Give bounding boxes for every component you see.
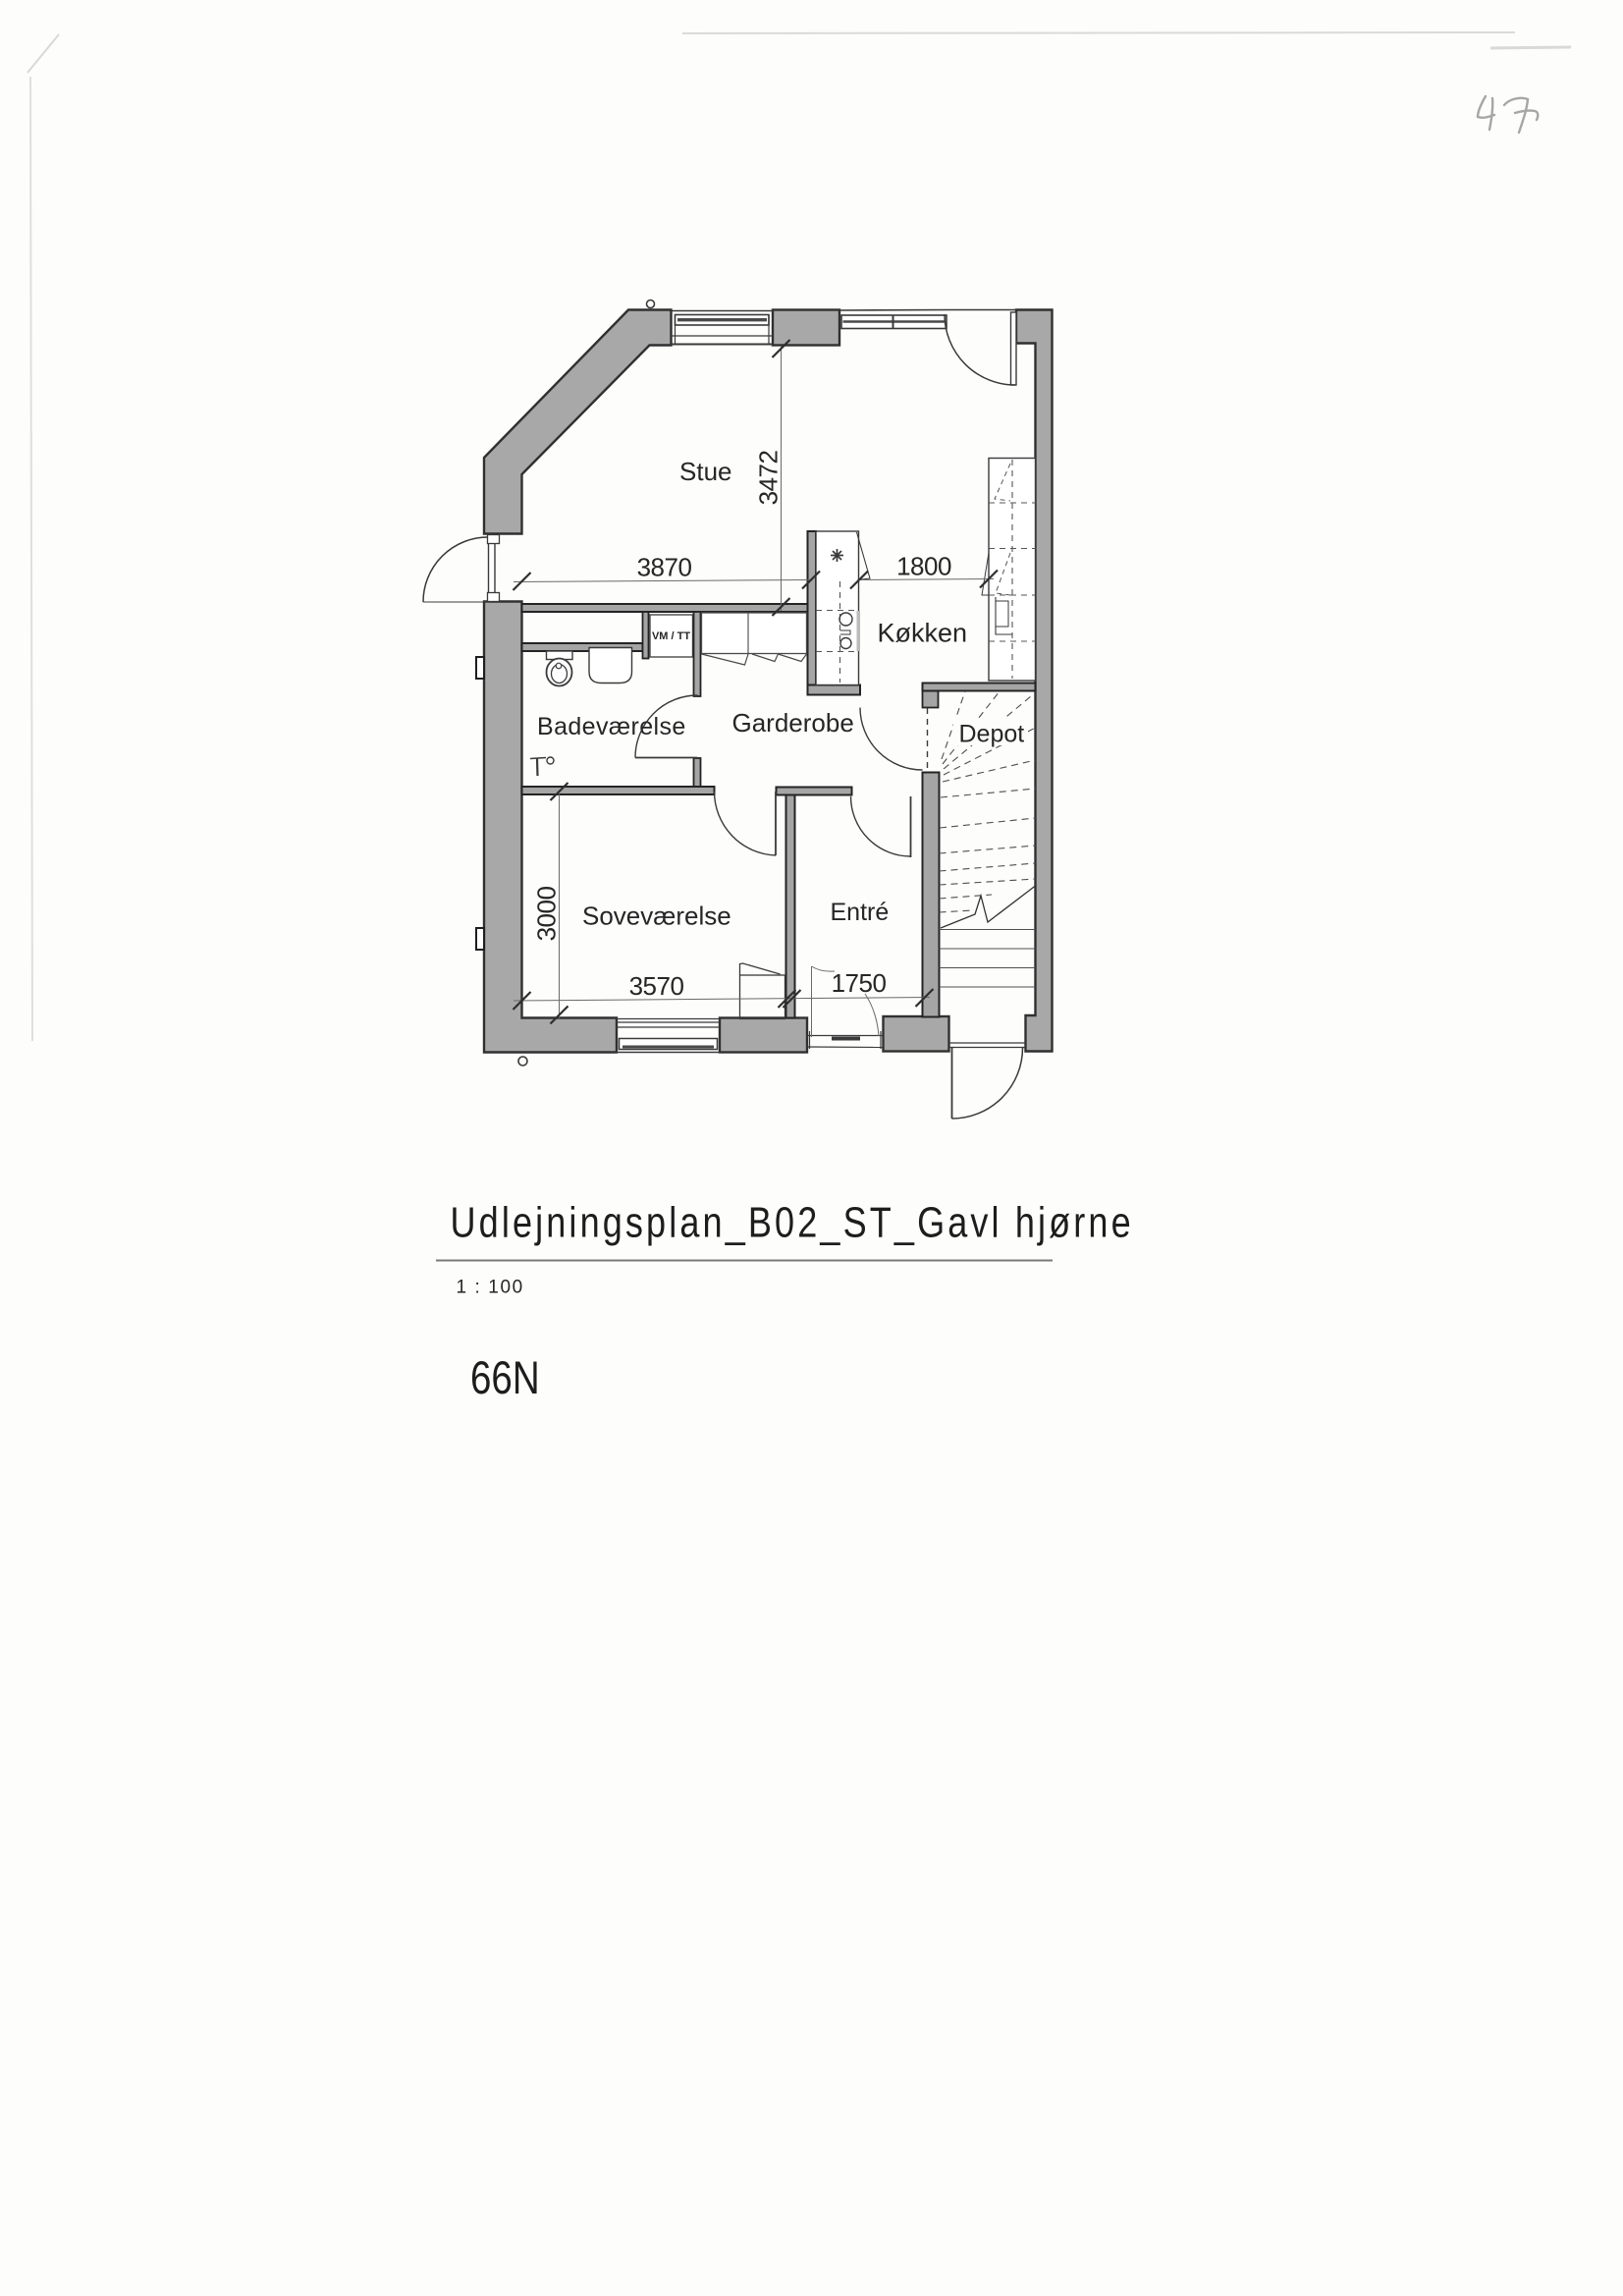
svg-text:1750: 1750 xyxy=(832,968,887,998)
svg-text:Badeværelse: Badeværelse xyxy=(537,713,686,740)
svg-text:3870: 3870 xyxy=(637,553,692,582)
svg-text:66N: 66N xyxy=(470,1352,540,1403)
svg-text:Depot: Depot xyxy=(959,721,1025,748)
svg-text:3570: 3570 xyxy=(629,971,684,1001)
svg-text:Soveværelse: Soveværelse xyxy=(582,902,731,931)
svg-text:Entré: Entré xyxy=(831,899,890,926)
svg-text:Køkken: Køkken xyxy=(878,619,968,648)
svg-text:Udlejningsplan_B02_ST_Gavl hjø: Udlejningsplan_B02_ST_Gavl hjørne xyxy=(451,1198,1134,1246)
svg-text:VM / TT: VM / TT xyxy=(652,630,690,642)
svg-text:Garderobe: Garderobe xyxy=(732,708,854,738)
svg-text:3472: 3472 xyxy=(754,451,784,506)
svg-text:1 : 100: 1 : 100 xyxy=(457,1278,524,1298)
svg-text:1800: 1800 xyxy=(896,552,951,581)
svg-text:3000: 3000 xyxy=(532,887,562,942)
svg-text:Stue: Stue xyxy=(679,457,732,486)
